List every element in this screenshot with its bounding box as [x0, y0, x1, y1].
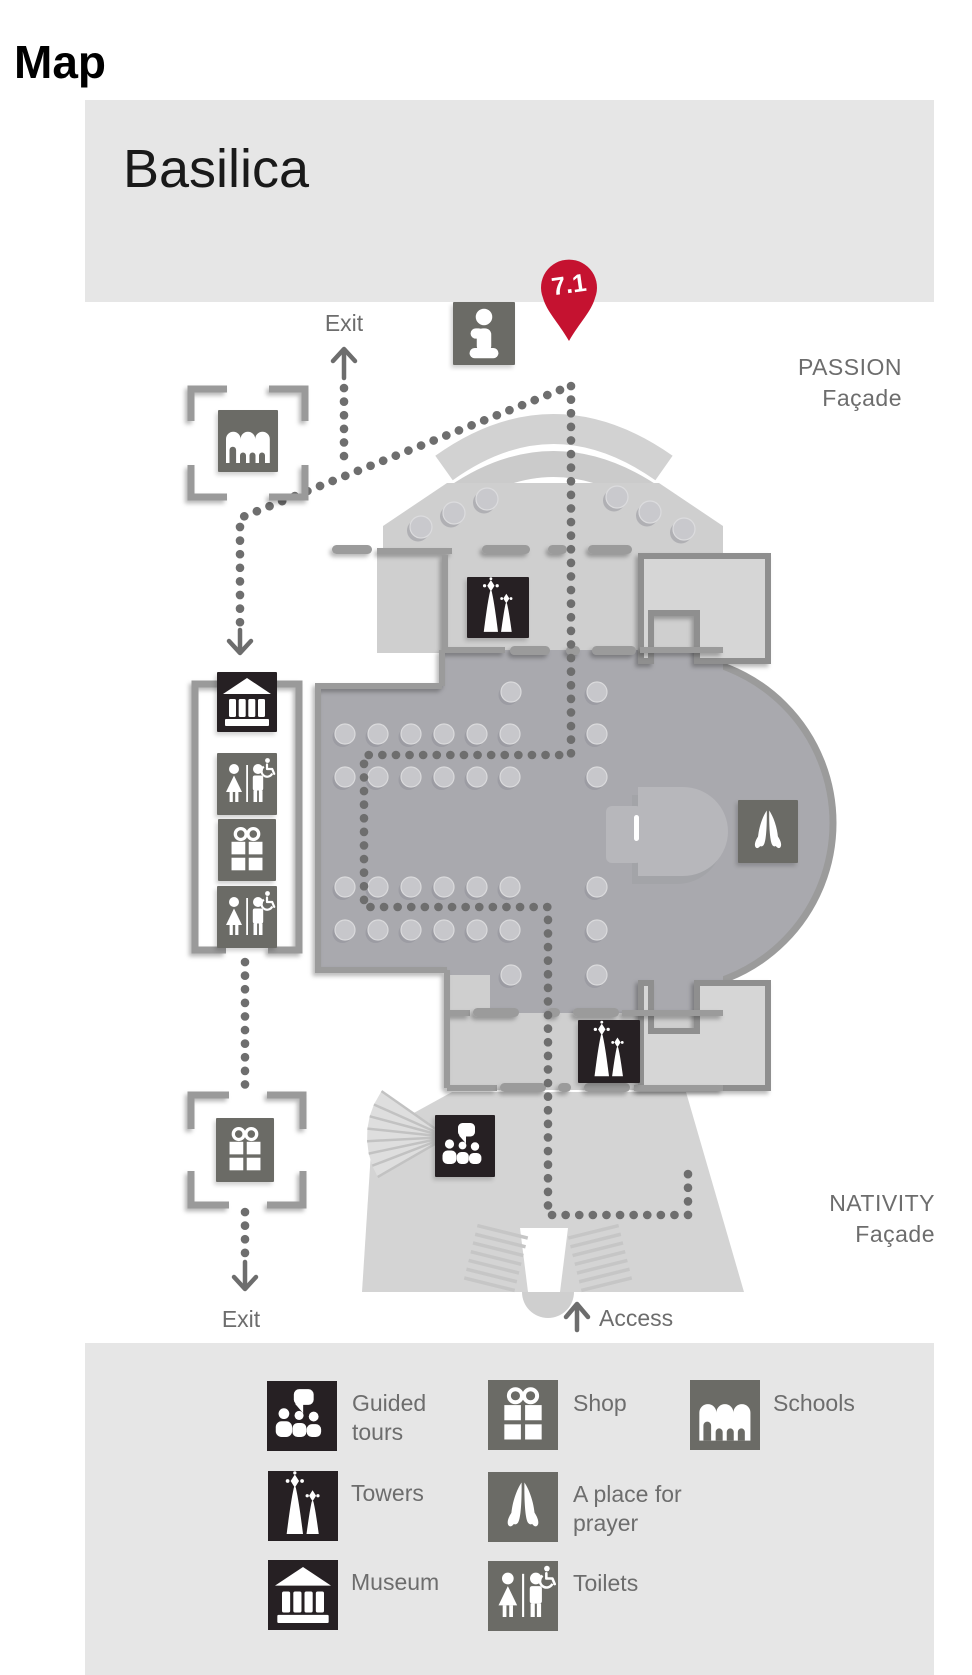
- schools-icon: [690, 1380, 760, 1450]
- guided-tours-icon: [435, 1115, 495, 1177]
- prayer-icon: [738, 800, 798, 863]
- legend-label-toilets: Toilets: [573, 1569, 638, 1598]
- map-title: Basilica: [123, 138, 309, 200]
- legend-label-museum: Museum: [351, 1568, 439, 1597]
- exit-top-label: Exit: [325, 310, 363, 337]
- legend: Guided tours Shop Schools Towers A place…: [85, 1343, 934, 1675]
- altar: [606, 787, 728, 884]
- legend-label-shop: Shop: [573, 1389, 627, 1418]
- schools-icon: [218, 410, 278, 472]
- towers-icon: [467, 577, 529, 638]
- columns: [333, 682, 608, 988]
- shop-icon: [488, 1380, 558, 1450]
- nativity-forecourt: [362, 1092, 744, 1292]
- access-arrow: [566, 1304, 588, 1330]
- path-down-arrow: [229, 630, 251, 653]
- exit-bottom-arrow: [234, 1262, 256, 1289]
- exit-bottom-label: Exit: [222, 1306, 260, 1333]
- shop-icon: [218, 819, 276, 881]
- towers-icon: [268, 1471, 338, 1541]
- legend-label-schools: Schools: [773, 1389, 855, 1418]
- guided-tours-icon: [267, 1381, 337, 1451]
- passion-steps: [444, 429, 664, 498]
- museum-icon: [268, 1560, 338, 1630]
- exit-top-arrow: [333, 349, 355, 378]
- prayer-icon: [488, 1472, 558, 1542]
- legend-label-towers: Towers: [351, 1479, 424, 1508]
- toilets-icon: [217, 886, 277, 948]
- legend-label-guided-tours: Guided tours: [352, 1389, 462, 1447]
- museum-icon: [217, 672, 277, 732]
- legend-label-prayer: A place for prayer: [573, 1480, 723, 1538]
- info-icon: [453, 302, 515, 365]
- toilets-icon: [217, 753, 277, 815]
- passion-facade-label: PASSION Façade: [798, 352, 902, 414]
- map-pin-label[interactable]: 7.1: [550, 269, 588, 303]
- page-title: Map: [14, 35, 106, 89]
- shop-icon: [216, 1118, 274, 1182]
- towers-icon: [578, 1020, 640, 1083]
- map-header-band: Basilica: [85, 100, 934, 302]
- toilets-icon: [488, 1561, 558, 1631]
- nativity-facade-label: NATIVITY Façade: [829, 1188, 935, 1250]
- map-page: Map Basilica: [0, 0, 972, 1675]
- access-label: Access: [599, 1305, 673, 1332]
